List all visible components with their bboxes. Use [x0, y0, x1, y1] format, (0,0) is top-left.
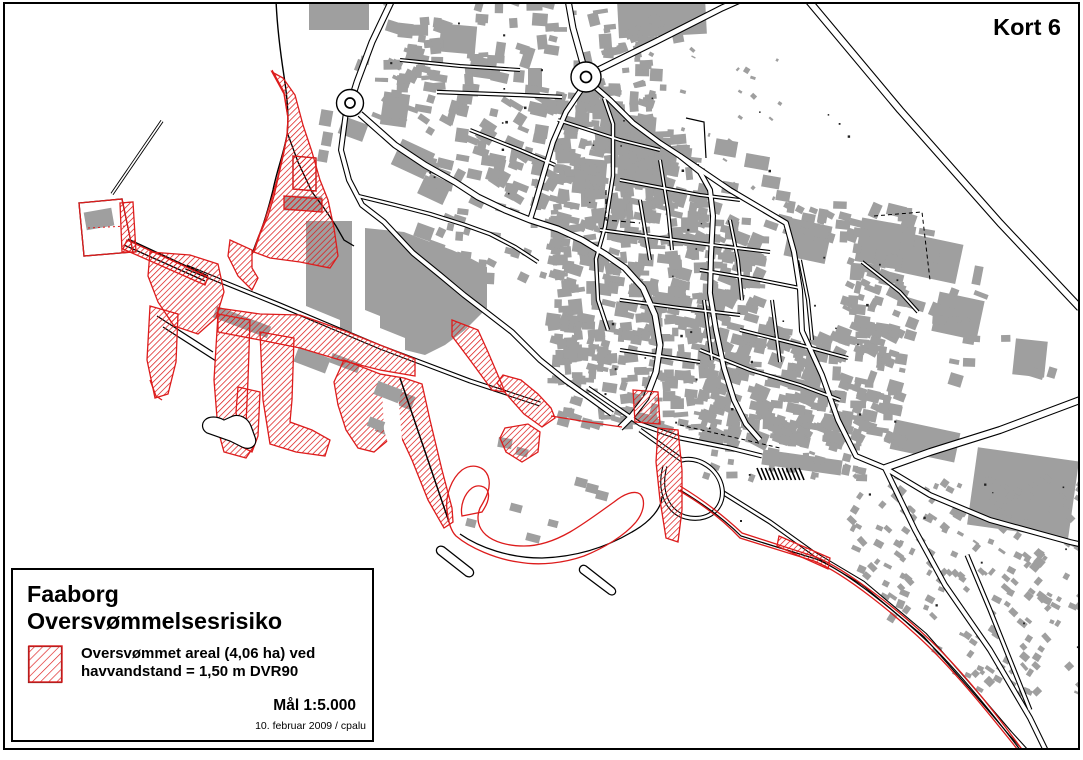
- svg-text:Oversvømmelsesrisiko: Oversvømmelsesrisiko: [27, 608, 282, 634]
- svg-text:Mål 1:5.000: Mål 1:5.000: [273, 697, 356, 714]
- svg-text:10. februar 2009 / cpalu: 10. februar 2009 / cpalu: [255, 720, 366, 732]
- svg-text:havvandstand = 1,50 m DVR90: havvandstand = 1,50 m DVR90: [81, 663, 298, 680]
- svg-text:Oversvømmet areal (4,06 ha) ve: Oversvømmet areal (4,06 ha) ved: [81, 645, 315, 662]
- svg-text:Kort 6: Kort 6: [993, 14, 1061, 40]
- svg-text:Faaborg: Faaborg: [27, 581, 119, 607]
